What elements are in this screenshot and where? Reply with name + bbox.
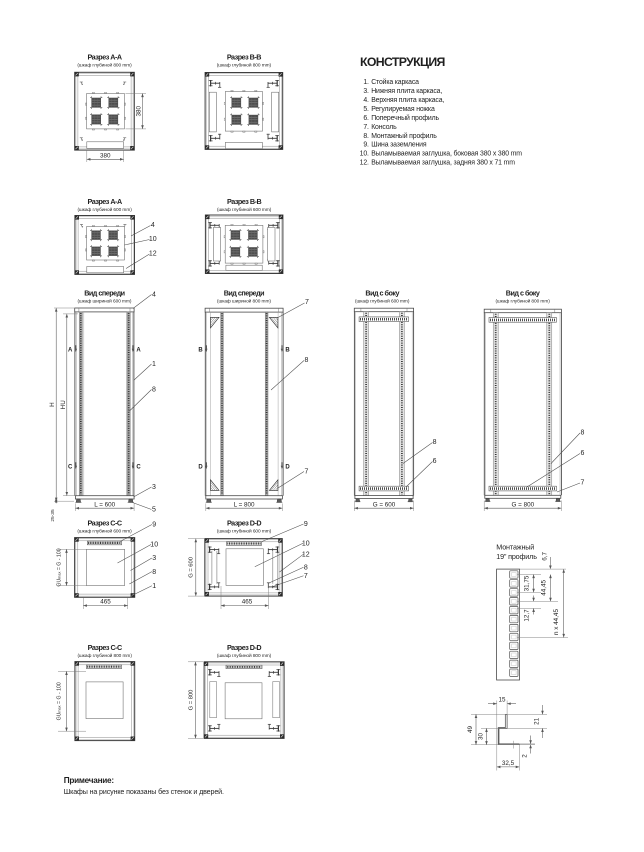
svg-text:Консоль: Консоль [371,124,397,131]
svg-text:8: 8 [304,357,308,364]
svg-text:Стойка каркаса: Стойка каркаса [371,78,419,86]
svg-text:Вид спереди: Вид спереди [224,289,264,298]
svg-text:3.: 3. [363,88,369,95]
svg-text:465: 465 [242,599,253,606]
svg-text:C: C [68,464,73,470]
svg-text:Разрез D-D: Разрез D-D [227,643,261,652]
svg-text:Разрез C-C: Разрез C-C [88,643,122,652]
svg-text:10.: 10. [360,151,369,158]
svg-text:12: 12 [302,551,310,558]
svg-text:465: 465 [100,599,111,606]
svg-text:Регулируемая ножка: Регулируемая ножка [371,106,435,113]
svg-text:(шкаф глубиной 800 mm): (шкаф глубиной 800 mm) [77,62,132,69]
svg-text:КОНСТРУКЦИЯ: КОНСТРУКЦИЯ [360,55,446,69]
svg-text:8: 8 [433,439,437,446]
svg-text:9: 9 [152,522,156,529]
svg-text:Вид спереди: Вид спереди [84,289,124,298]
svg-text:Выламываемая заглушка, боковая: Выламываемая заглушка, боковая 380 x 380… [371,150,522,158]
svg-text:Выламываемая заглушка, задняя: Выламываемая заглушка, задняя 380 x 71 m… [371,160,515,167]
svg-text:Нижняя плита каркаса,: Нижняя плита каркаса, [371,88,442,95]
svg-text:Верхняя плита каркаса,: Верхняя плита каркаса, [371,97,444,104]
svg-text:B: B [285,347,290,353]
svg-text:10: 10 [150,542,158,549]
svg-text:4: 4 [152,292,156,299]
svg-text:8: 8 [580,429,584,436]
svg-text:Разрез A-A: Разрез A-A [87,53,121,62]
svg-text:5.: 5. [363,106,369,113]
svg-text:9: 9 [304,521,308,528]
svg-text:5: 5 [152,507,156,514]
svg-text:(шкаф глубиной 600 mm): (шкаф глубиной 600 mm) [217,528,272,535]
svg-text:12.: 12. [360,160,369,167]
svg-text:9.: 9. [363,142,369,149]
svg-text:A: A [68,347,73,353]
svg-text:G = 600: G = 600 [189,557,195,578]
svg-text:21: 21 [533,717,540,725]
svg-text:12,7: 12,7 [524,609,531,622]
svg-text:n x 44,45: n x 44,45 [553,609,560,635]
svg-text:A: A [136,347,141,353]
svg-text:(шкаф глубиной 800 mm): (шкаф глубиной 800 mm) [495,298,550,305]
svg-text:C: C [136,464,141,470]
svg-text:Шина заземления: Шина заземления [371,142,427,149]
svg-text:G = 800: G = 800 [512,501,535,508]
svg-text:Разрез C-C: Разрез C-C [87,519,121,528]
svg-text:D: D [198,464,203,470]
svg-text:Поперечный профиль: Поперечный профиль [371,114,439,122]
svg-text:1.: 1. [363,79,369,86]
svg-text:4.: 4. [363,97,369,104]
svg-text:4: 4 [151,222,155,229]
svg-text:12: 12 [149,251,157,258]
svg-text:49: 49 [467,726,474,734]
svg-text:15: 15 [498,697,506,704]
svg-text:(шкаф шириной 600 mm): (шкаф шириной 600 mm) [77,298,131,305]
svg-text:380: 380 [100,152,111,159]
svg-text:B: B [198,347,203,353]
svg-text:(шкаф глубиной 600 mm): (шкаф глубиной 600 mm) [355,298,410,305]
svg-text:380: 380 [135,105,142,116]
svg-text:G = 600: G = 600 [373,501,396,508]
svg-text:6,7: 6,7 [541,551,548,560]
svg-text:(шкаф глубиной 800 mm): (шкаф глубиной 800 mm) [217,62,272,69]
svg-text:7.: 7. [363,124,369,131]
svg-text:(шкаф глубиной 600 mm): (шкаф глубиной 600 mm) [217,206,272,213]
svg-text:D: D [285,464,290,470]
svg-text:Монтажный: Монтажный [496,543,534,552]
svg-text:Разрез B-B: Разрез B-B [227,53,261,62]
svg-text:H: H [49,402,56,407]
svg-text:32,5: 32,5 [502,760,515,767]
svg-text:8: 8 [152,569,156,576]
svg-text:GUmax = G - 100: GUmax = G - 100 [56,682,62,720]
svg-text:2: 2 [522,754,529,758]
svg-text:6.: 6. [363,115,369,122]
svg-text:7: 7 [304,469,308,476]
svg-text:6: 6 [433,458,437,465]
svg-text:7: 7 [580,480,584,487]
svg-text:(шкаф глубиной 800 mm): (шкаф глубиной 800 mm) [78,652,133,659]
svg-text:7: 7 [305,299,309,306]
svg-text:(шкаф глубиной 600 mm): (шкаф глубиной 600 mm) [77,206,132,213]
svg-text:1: 1 [152,583,156,590]
svg-text:8: 8 [304,564,308,571]
svg-text:L = 800: L = 800 [234,501,255,508]
svg-text:Разрез D-D: Разрез D-D [227,519,261,528]
svg-text:(шкаф шириной 800 mm): (шкаф шириной 800 mm) [217,298,271,305]
svg-text:10: 10 [302,541,310,548]
svg-text:(шкаф глубиной 800 mm): (шкаф глубиной 800 mm) [217,652,272,659]
svg-text:19” профиль: 19” профиль [496,552,537,561]
svg-text:G = 800: G = 800 [188,690,194,711]
svg-text:Примечание:: Примечание: [64,776,114,785]
svg-text:(шкаф глубиной 600 mm): (шкаф глубиной 600 mm) [77,528,132,535]
svg-text:1: 1 [152,361,156,368]
svg-text:3: 3 [152,555,156,562]
svg-text:Шкафы на рисунке показаны без: Шкафы на рисунке показаны без стенок и д… [64,788,224,796]
svg-text:6: 6 [580,450,584,457]
svg-text:30: 30 [477,733,484,741]
svg-text:Разрез B-B: Разрез B-B [227,197,261,206]
svg-text:Монтажный профиль: Монтажный профиль [371,132,437,140]
svg-text:HU: HU [60,400,67,410]
svg-text:Разрез A-A: Разрез A-A [88,197,122,206]
svg-text:Вид с боку: Вид с боку [365,289,399,298]
svg-text:3: 3 [152,484,156,491]
svg-text:GUmax = G - 100: GUmax = G - 100 [57,548,63,586]
svg-text:Вид с боку: Вид с боку [506,289,540,298]
svg-text:8: 8 [152,387,156,394]
svg-text:8.: 8. [363,133,369,140]
svg-text:31,75: 31,75 [524,575,531,591]
svg-text:L = 600: L = 600 [94,501,115,508]
svg-text:44,45: 44,45 [540,580,547,596]
svg-text:7: 7 [304,573,308,580]
svg-text:10: 10 [149,236,157,243]
svg-text:25-35: 25-35 [50,509,56,522]
